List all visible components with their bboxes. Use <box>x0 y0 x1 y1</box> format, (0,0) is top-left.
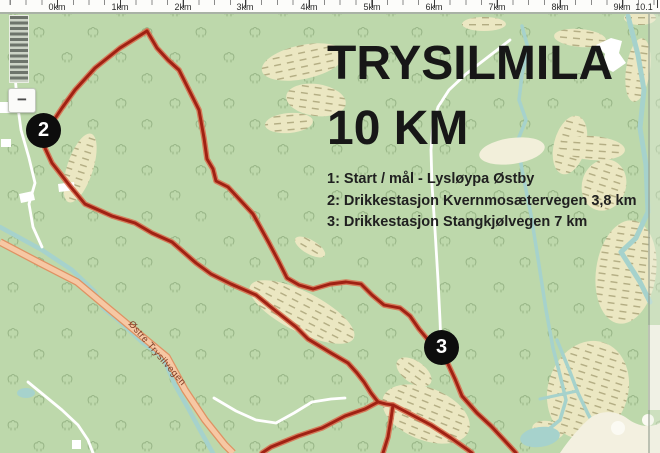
scale-label: 9km <box>613 2 630 12</box>
zoom-slider[interactable] <box>10 16 28 82</box>
scale-label: 10.1 <box>635 2 653 12</box>
map-title: TRYSILMILA 10 KM <box>327 40 613 153</box>
route-marker-3[interactable]: 3 <box>424 330 459 365</box>
scale-label: 5km <box>363 2 380 12</box>
scale-bar: 0km 1km 2km 3km 4km 5km 6km 7km 8km 9km … <box>0 0 660 14</box>
scale-label: 6km <box>425 2 442 12</box>
route-legend: 1: Start / mål - Lysløypa Østby 2: Drikk… <box>327 169 636 234</box>
scale-label: 1km <box>111 2 128 12</box>
legend-item-station2: 2: Drikkestasjon Kvernmosætervegen 3,8 k… <box>327 191 636 213</box>
scale-label: 7km <box>488 2 505 12</box>
title-line1: TRYSILMILA <box>327 40 613 88</box>
map-edge-shade <box>650 14 660 453</box>
legend-item-station3: 3: Drikkestasjon Stangkjølvegen 7 km <box>327 212 636 234</box>
route-marker-2[interactable]: 2 <box>26 113 61 148</box>
marker-number: 2 <box>38 119 49 142</box>
legend-item-start: 1: Start / mål - Lysløypa Østby <box>327 169 636 191</box>
map-canvas[interactable]: Østre Trysilvegen 0km 1km <box>0 0 660 453</box>
scale-tick <box>657 0 658 8</box>
title-line2: 10 KM <box>327 105 613 153</box>
marker-number: 3 <box>436 336 447 359</box>
scale-label: 4km <box>300 2 317 12</box>
scale-label: 3km <box>236 2 253 12</box>
scale-label: 2km <box>174 2 191 12</box>
scale-label: 8km <box>551 2 568 12</box>
scale-label: 0km <box>48 2 65 12</box>
zoom-out-button[interactable]: − <box>8 88 36 113</box>
